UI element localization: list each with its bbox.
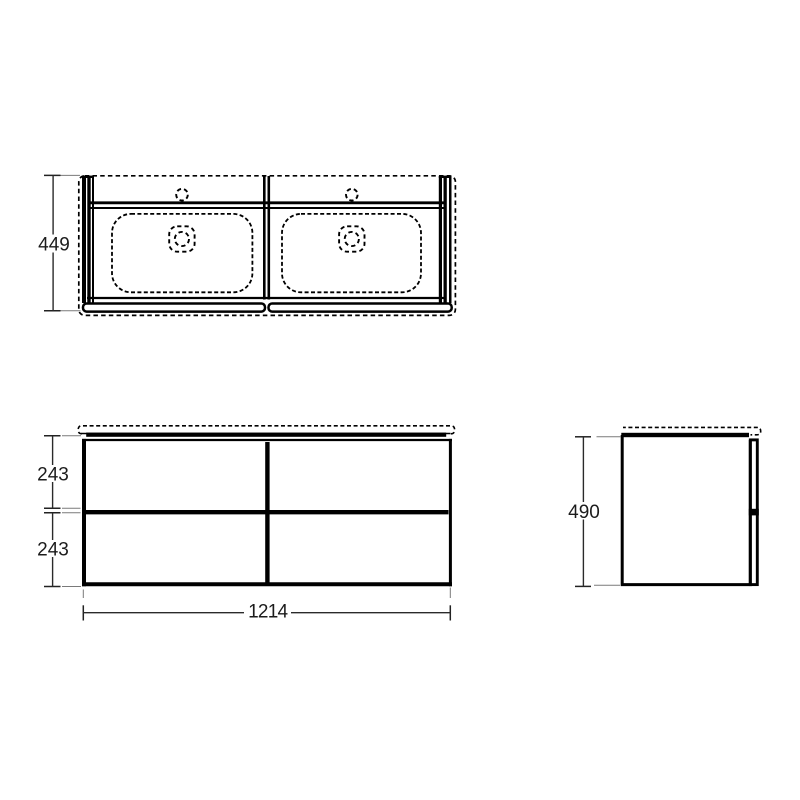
svg-text:243: 243 (37, 540, 69, 561)
svg-text:490: 490 (568, 502, 600, 523)
svg-text:1214: 1214 (248, 602, 288, 623)
svg-text:243: 243 (37, 465, 69, 486)
svg-text:449: 449 (38, 234, 70, 255)
